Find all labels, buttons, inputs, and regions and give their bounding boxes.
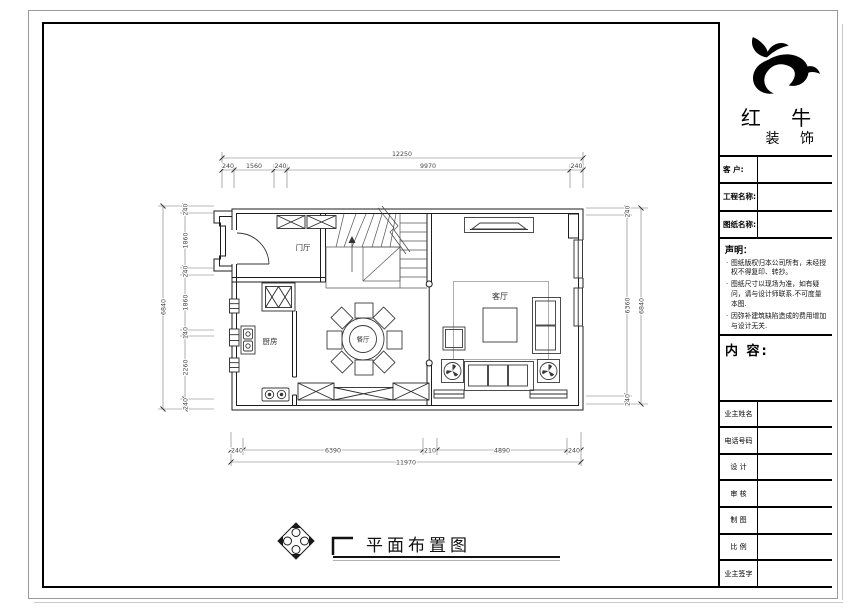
field-value: [758, 402, 832, 427]
left-wall-windows: [230, 299, 240, 372]
living-furniture: [442, 218, 561, 391]
dim-right-total: 6840: [639, 298, 646, 314]
field-label: 业主签字: [720, 561, 758, 586]
living-south-windows: [434, 390, 567, 398]
dim-bottom-total: 11970: [396, 460, 416, 467]
field-value: [758, 481, 832, 506]
bull-logo-icon: [734, 30, 820, 102]
field-value: [758, 535, 832, 560]
dining-south-windows: [298, 383, 429, 400]
dim-label: 6390: [325, 448, 341, 455]
brand-name: 红 牛: [720, 102, 832, 131]
field-value: [758, 157, 832, 182]
title-block: 红 牛 装 饰 客 户: 工程名称: 图纸名称: 声明： 图纸版权归本公司所有，…: [718, 22, 832, 588]
kitchen-sink: [241, 326, 255, 354]
sign-row-designer: 设 计: [720, 453, 832, 480]
statement-note: 因弥补建筑缺陷造成的费用增加与设计无关.: [725, 312, 828, 332]
title-bracket: [333, 538, 353, 555]
drawing-title: 平面布置图: [366, 536, 471, 556]
statement-section: 声明： 图纸版权归本公司所有，未经授权不得复印、转抄。 图纸尺寸以现场为准，如有…: [720, 237, 832, 334]
entry-porch: [214, 211, 232, 271]
room-label-entry: 门厅: [296, 243, 311, 252]
sign-row-scale: 比 例: [720, 533, 832, 560]
field-row-client: 客 户:: [720, 155, 832, 182]
fan-table-left: [442, 360, 464, 383]
side-stool: [443, 327, 465, 350]
coffee-table: [483, 308, 517, 342]
field-label: 比 例: [720, 535, 758, 560]
dim-label: 240: [625, 205, 632, 217]
dim-top-total: 12250: [392, 151, 412, 158]
field-value: [758, 561, 832, 586]
field-label: 图纸名称:: [720, 212, 758, 237]
field-label: 客 户:: [720, 157, 758, 182]
field-value: [758, 184, 832, 209]
dim-label: 210: [424, 448, 436, 455]
sign-row-owner-name: 业主姓名: [720, 400, 832, 427]
room-label-dining: 餐厅: [357, 335, 371, 344]
field-value: [758, 455, 832, 480]
sign-row-owner-signature: 业主签字: [720, 559, 832, 588]
content-section: 内 容:: [720, 334, 832, 400]
dim-label: 240: [625, 394, 632, 406]
statement-heading: 声明：: [725, 243, 828, 256]
field-label: 制 图: [720, 508, 758, 533]
compass-icon: [278, 523, 314, 559]
sign-row-phone: 电话号码: [720, 426, 832, 453]
dim-label: 240: [183, 203, 190, 215]
sign-row-drafter: 制 图: [720, 506, 832, 533]
sofa: [465, 362, 534, 391]
field-label: 工程名称:: [720, 184, 758, 209]
dim-label: 240: [570, 163, 582, 170]
field-row-project-name: 工程名称:: [720, 182, 832, 209]
sign-row-reviewer: 审 核: [720, 479, 832, 506]
field-label: 审 核: [720, 481, 758, 506]
drawing-sheet: 门厅 厨房 餐厅 客厅: [0, 0, 860, 608]
field-value: [758, 508, 832, 533]
brand-area: 红 牛 装 饰: [720, 22, 832, 155]
field-label: 设 计: [720, 455, 758, 480]
entry-door: [237, 233, 269, 264]
dim-label: 1860: [183, 232, 190, 248]
dim-label: 1860: [183, 294, 190, 310]
fan-table-right: [538, 360, 560, 383]
dim-label: 240: [568, 448, 580, 455]
dim-label: 140: [183, 327, 190, 339]
field-label: 业主姓名: [720, 402, 758, 427]
dim-label: 240: [183, 265, 190, 277]
loveseat: [533, 298, 561, 354]
dim-label: 9970: [420, 163, 436, 170]
entry-top-windows: [277, 216, 336, 229]
field-value: [758, 212, 832, 237]
dim-label: 240: [183, 398, 190, 410]
field-row-drawing-name: 图纸名称:: [720, 210, 832, 237]
content-heading: 内 容:: [725, 344, 769, 359]
stair-arrow-icon: [349, 236, 356, 243]
dim-label: 2260: [183, 359, 190, 375]
dim-label: 240: [231, 448, 243, 455]
statement-note: 图纸版权归本公司所有，未经授权不得复印、转抄。: [725, 259, 828, 279]
brand-subname: 装 饰: [766, 128, 822, 148]
drawing-title-group: 平面布置图: [278, 523, 560, 561]
dim-label: 1560: [246, 163, 262, 170]
staircase: [326, 206, 427, 288]
room-label-living: 客厅: [492, 291, 508, 301]
field-value: [758, 428, 832, 453]
elevator-shaft: [262, 283, 295, 311]
kitchen-stove: [262, 388, 289, 401]
dim-label: 240: [222, 163, 234, 170]
dim-label: 6360: [625, 297, 632, 313]
dim-label: 4890: [494, 448, 510, 455]
field-label: 电话号码: [720, 428, 758, 453]
dim-label: 240: [274, 163, 286, 170]
tv-console: [465, 218, 534, 233]
room-labels: 门厅 厨房 餐厅 客厅: [263, 243, 509, 346]
room-label-kitchen: 厨房: [263, 336, 278, 346]
statement-note: 图纸尺寸以现场为准，如有疑问，请与设计师联系.不可度量本图.: [725, 280, 828, 310]
dim-left-total: 6840: [161, 299, 168, 315]
